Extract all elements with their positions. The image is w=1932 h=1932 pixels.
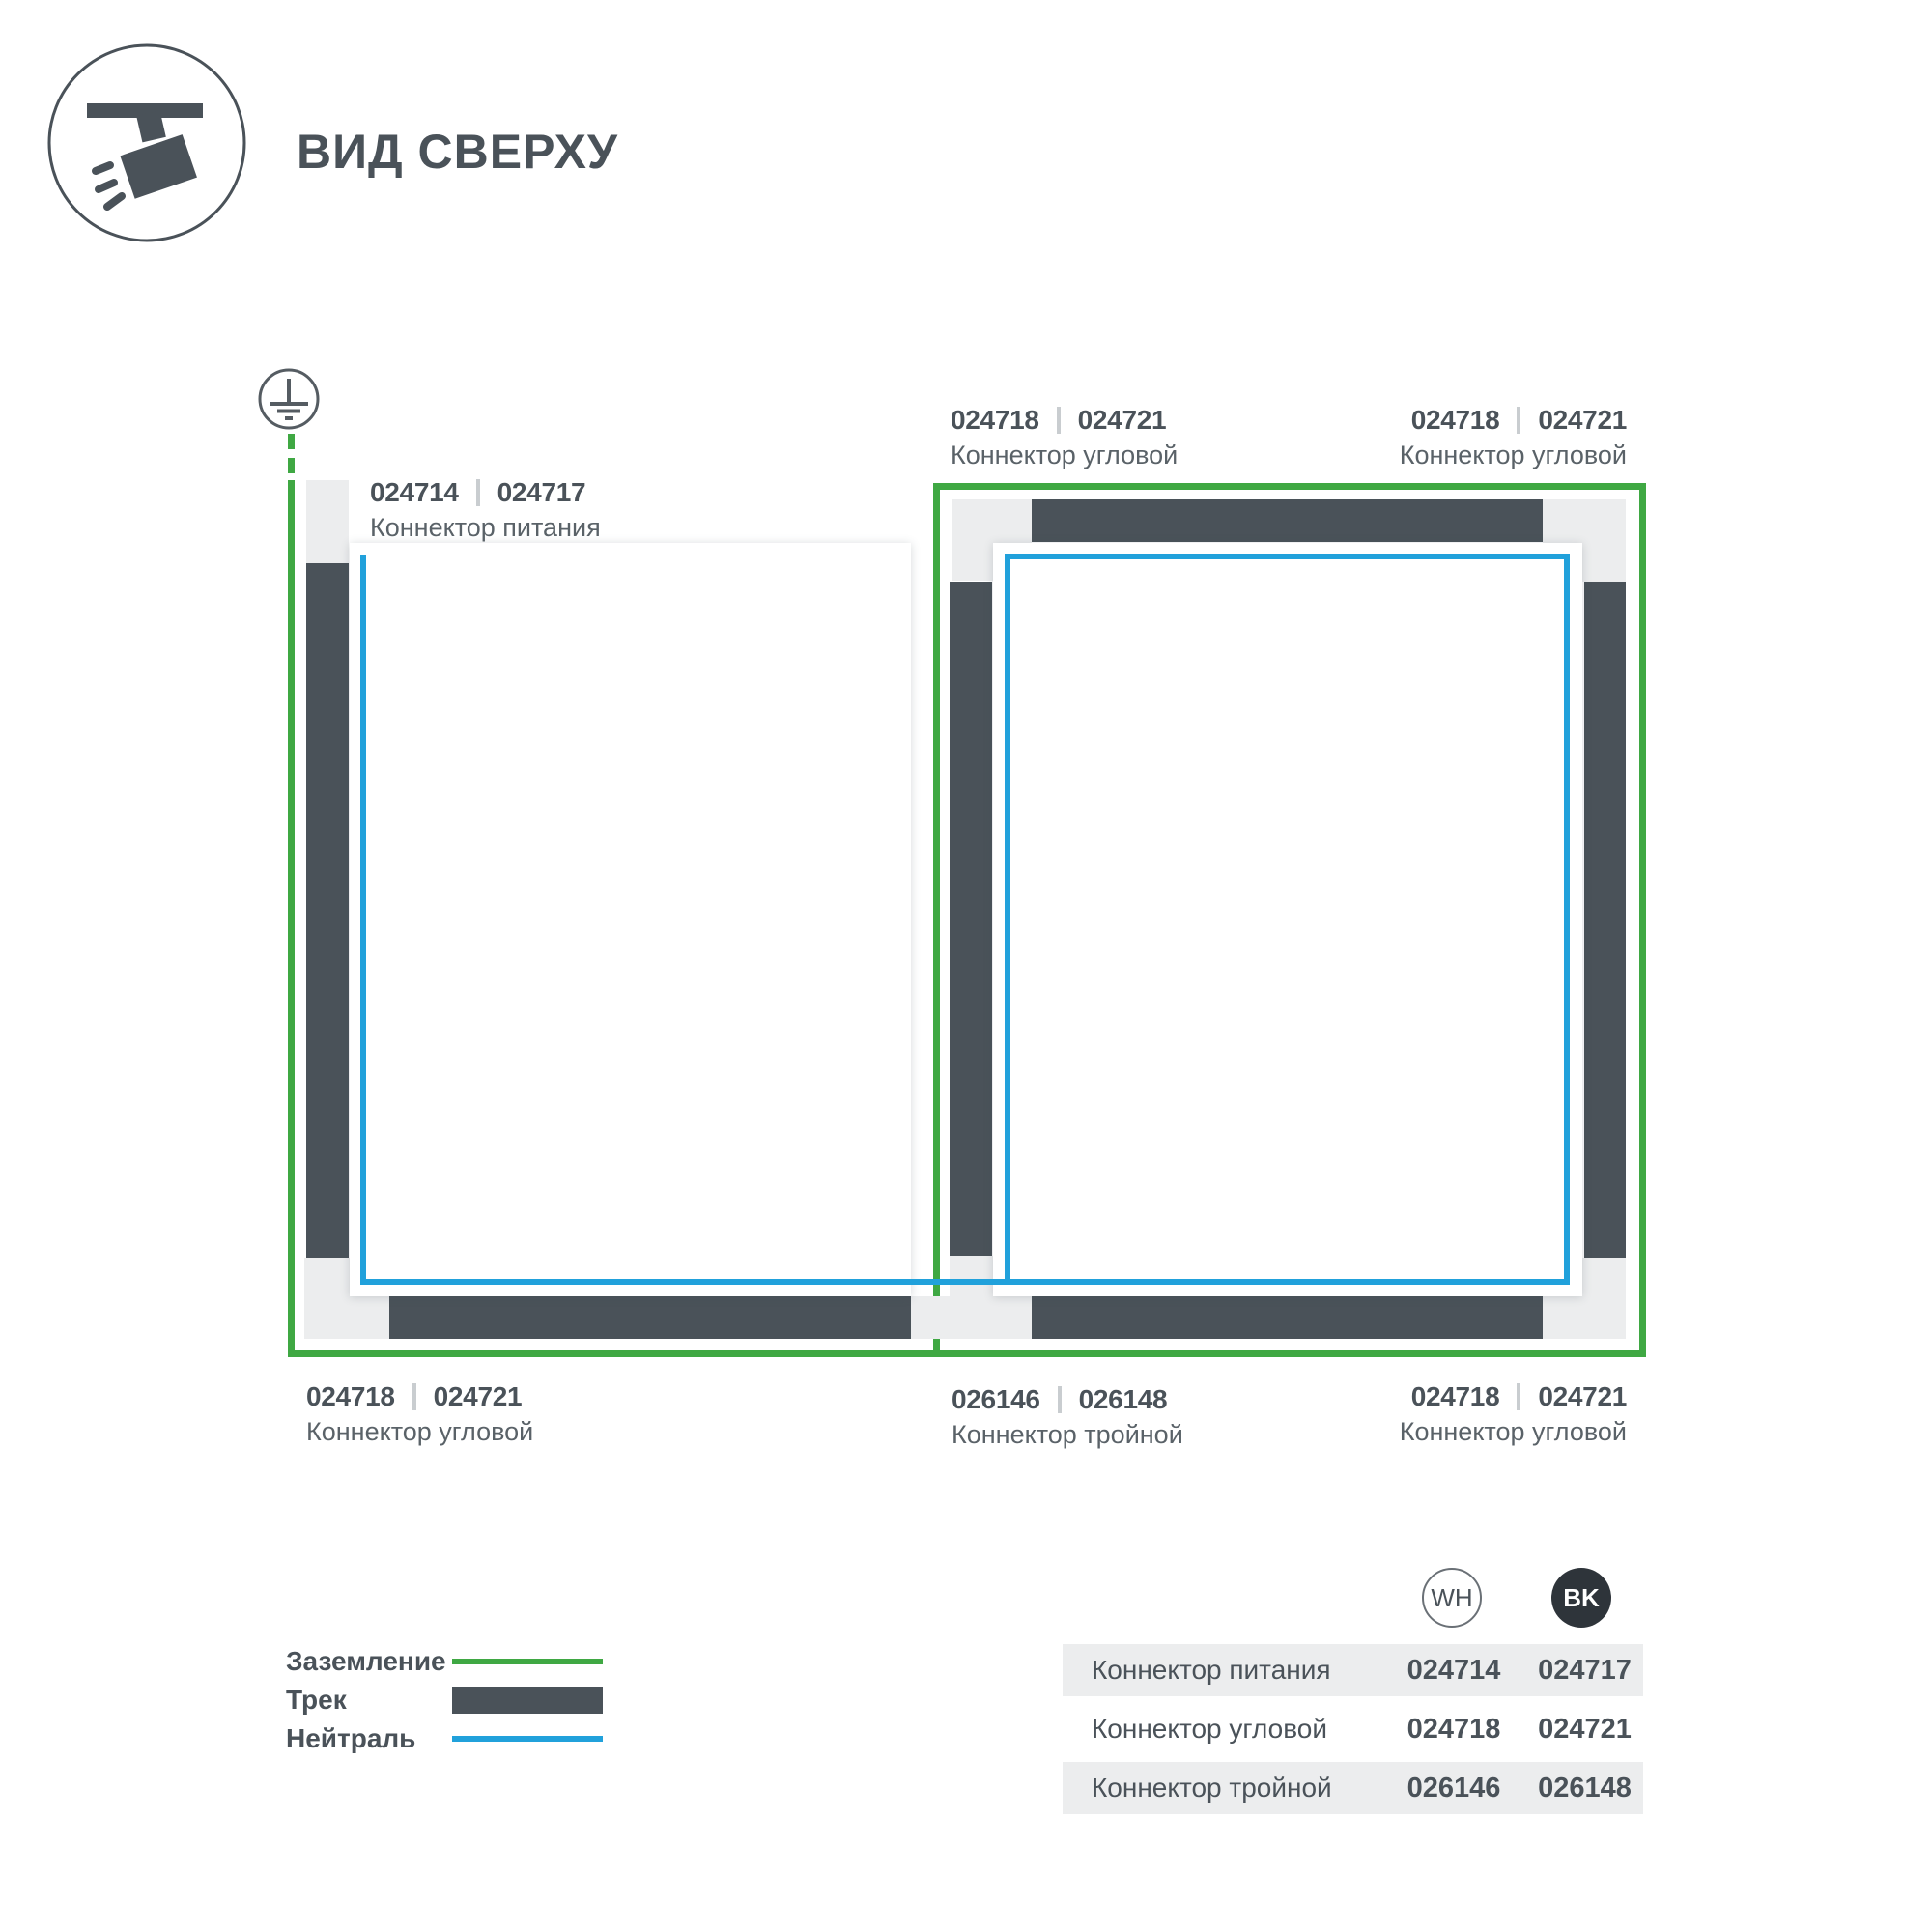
legend-item-track: Трек [286,1681,603,1719]
table-cell-name: Коннектор тройной [1063,1773,1381,1804]
part-name: Коннектор угловой [306,1417,533,1446]
neutral-line-left-vertical [360,555,366,1285]
legend-item-neutral: Нейтраль [286,1719,603,1758]
code-separator [1057,407,1061,434]
callout-power-connector: 024714 024717 Коннектор питания [370,477,601,542]
table-row: Коннектор питания 024714 024717 [1063,1644,1643,1696]
legend: Заземление Трек Нейтраль [286,1642,603,1758]
track-left-bottom [389,1296,911,1339]
code-separator [412,1383,416,1410]
table-cell-bk: 026148 [1526,1773,1643,1804]
neutral-line-swatch [452,1736,603,1742]
part-code-wh: 024718 [306,1381,395,1412]
triple-connector-stub [950,1256,993,1298]
part-name: Коннектор угловой [1400,1417,1627,1446]
power-connector [306,480,349,563]
callout-triple-connector: 026146 026148 Коннектор тройной [952,1384,1183,1449]
track-left-vertical [306,563,349,1258]
callout-corner-bottom-right: 024718 024721 Коннектор угловой [1400,1381,1627,1446]
track-swatch [452,1687,603,1714]
track-right-loop-bottom [1032,1296,1543,1339]
white-color-badge: WH [1422,1568,1482,1628]
code-separator [476,479,480,506]
table-cell-wh: 024714 [1381,1655,1526,1687]
table-cell-bk: 024721 [1526,1714,1643,1746]
part-code-wh: 026146 [952,1384,1040,1415]
table-cell-name: Коннектор угловой [1063,1714,1381,1745]
ground-line-bottom-horizontal [288,1350,940,1357]
code-separator [1517,407,1520,434]
code-separator [1517,1383,1520,1410]
table-row: Коннектор тройной 026146 026148 [1063,1762,1643,1814]
callout-corner-bottom-left: 024718 024721 Коннектор угловой [306,1381,533,1446]
part-code-bk: 024721 [434,1381,523,1412]
callout-corner-top-right: 024718 024721 Коннектор угловой [1400,405,1627,469]
legend-label: Нейтраль [286,1723,452,1754]
table-cell-wh: 026146 [1381,1773,1526,1804]
table-cell-bk: 024717 [1526,1655,1643,1687]
parts-table: Коннектор питания 024714 024717 Коннекто… [1063,1644,1643,1821]
legend-label: Заземление [286,1646,452,1677]
page: ВИД СВЕРХУ 024714 024717 [0,0,1932,1932]
part-name: Коннектор тройной [952,1420,1183,1449]
part-code-bk: 024717 [497,477,586,508]
table-cell-name: Коннектор питания [1063,1655,1381,1686]
part-code-bk: 024721 [1538,405,1627,436]
part-code-wh: 024718 [1411,1381,1500,1412]
ground-icon [257,367,321,431]
track-right-loop-top [1032,499,1543,542]
neutral-loop-right [1005,554,1570,1285]
ground-line-swatch [452,1659,603,1664]
part-name: Коннектор угловой [1400,440,1627,469]
ground-lead-dashed [288,434,295,480]
legend-label: Трек [286,1685,452,1716]
code-separator [1058,1386,1062,1413]
page-title: ВИД СВЕРХУ [297,124,618,180]
track-spotlight-icon [45,42,248,244]
black-color-badge: BK [1551,1568,1611,1628]
track-right-loop-left [950,582,992,1256]
part-code-wh: 024718 [1411,405,1500,436]
track-right-loop-right [1584,582,1626,1258]
part-name: Коннектор угловой [951,440,1178,469]
ground-line-left-vertical [288,480,295,1357]
table-row: Коннектор угловой 024718 024721 [1063,1703,1643,1755]
part-code-wh: 024718 [951,405,1039,436]
part-code-bk: 024721 [1538,1381,1627,1412]
triple-connector-body [911,1296,1034,1339]
part-name: Коннектор питания [370,513,601,542]
table-cell-wh: 024718 [1381,1714,1526,1746]
part-code-wh: 024714 [370,477,459,508]
part-code-bk: 024721 [1078,405,1167,436]
part-code-bk: 026148 [1079,1384,1168,1415]
callout-corner-top-left: 024718 024721 Коннектор угловой [951,405,1178,469]
legend-item-ground: Заземление [286,1642,603,1681]
inner-panel-left [350,543,911,1296]
